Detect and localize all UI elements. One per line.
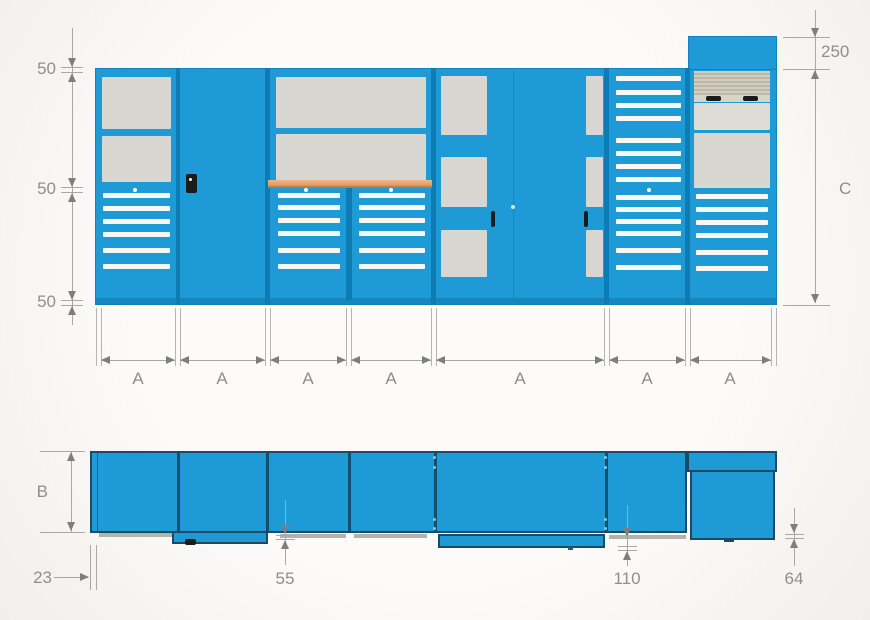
drawer-slit xyxy=(616,195,681,200)
gray-front-panel xyxy=(694,103,770,130)
hinge-dot xyxy=(604,466,607,469)
dim-label-23: 23 xyxy=(22,569,52,587)
plan-module-divider xyxy=(177,452,180,532)
worktop xyxy=(268,180,432,188)
extension-line xyxy=(96,545,97,590)
drawer-slit xyxy=(696,250,768,255)
dimension-tick xyxy=(276,535,295,536)
hinge-dot xyxy=(433,527,436,530)
plan-left-side-panel-line xyxy=(97,451,98,533)
module-divider xyxy=(685,68,690,305)
arrowhead-down xyxy=(67,522,75,531)
extension-line xyxy=(771,308,772,366)
arrowhead-right xyxy=(595,356,604,364)
lock-cylinder xyxy=(511,205,515,209)
drawer-slit xyxy=(616,151,681,156)
extension-line xyxy=(783,37,830,38)
drawer-slit xyxy=(696,266,768,271)
gray-window-panel xyxy=(586,76,603,135)
dimension-line xyxy=(609,360,685,361)
dim-label-110: 110 xyxy=(608,570,646,588)
dim-label-height-50-middle: 50 xyxy=(24,180,56,198)
dimension-line xyxy=(101,360,175,361)
dim-label-64: 64 xyxy=(780,570,808,588)
dimension-line xyxy=(270,360,346,361)
dimension-line xyxy=(436,360,604,361)
dimension-tick xyxy=(618,546,637,547)
drawer-slit xyxy=(359,248,425,253)
arrowhead-up xyxy=(790,539,798,548)
drawer-slit xyxy=(103,232,170,237)
lock-cylinder xyxy=(133,188,137,192)
drawer-slit xyxy=(359,264,425,269)
extension-line xyxy=(96,308,97,366)
dim-label-A-7: A xyxy=(720,370,740,388)
arrowhead-up xyxy=(68,193,76,202)
plan-step-detail xyxy=(568,547,573,550)
module-divider xyxy=(176,68,180,305)
plan-door-handle xyxy=(185,539,196,545)
drawer-slit xyxy=(616,231,681,236)
arrowhead-left xyxy=(270,356,279,364)
gray-door-panel xyxy=(102,136,171,182)
arrowhead-right xyxy=(337,356,346,364)
plan-worktop-edge-strip xyxy=(354,534,427,538)
arrowhead-up xyxy=(67,452,75,461)
hinge-dot xyxy=(604,527,607,530)
gray-window-panel xyxy=(441,76,487,135)
drawer-slit xyxy=(616,207,681,212)
drawer-slit xyxy=(616,177,681,182)
arrowhead-right xyxy=(80,573,89,581)
plan-door-module-step xyxy=(438,534,605,548)
drawer-slit xyxy=(103,206,170,211)
drawer-slit xyxy=(616,116,681,121)
drawer-slit xyxy=(359,193,425,198)
drawer-slit xyxy=(696,207,768,212)
drawer-slit xyxy=(103,193,170,198)
plan-right-cabinet-foot xyxy=(724,538,734,542)
arrowhead-up xyxy=(68,73,76,82)
plan-right-cabinet-body xyxy=(690,470,775,540)
module-divider xyxy=(604,68,609,305)
arrowhead-right xyxy=(762,356,771,364)
lock-cylinder xyxy=(389,188,393,192)
extension-line xyxy=(783,305,830,306)
drawer-slit xyxy=(616,164,681,169)
arrowhead-left xyxy=(609,356,618,364)
drawer-slit xyxy=(616,219,681,224)
dim-label-C: C xyxy=(839,180,851,198)
dimension-line xyxy=(180,360,265,361)
plan-front-edge-strip xyxy=(99,533,172,537)
module-divider xyxy=(346,188,352,300)
arrowhead-down xyxy=(68,178,76,187)
arrowhead-up xyxy=(623,551,631,560)
extension-line xyxy=(604,308,605,366)
gray-front-panel xyxy=(694,133,770,188)
extension-line xyxy=(783,69,830,70)
drawer-slit xyxy=(616,138,681,143)
dim-label-A-1: A xyxy=(128,370,148,388)
dim-label-B: B xyxy=(26,483,48,501)
dimension-tick xyxy=(61,300,83,301)
arrowhead-up xyxy=(811,70,819,79)
drawer-slit xyxy=(359,205,425,210)
drawer-slit xyxy=(616,90,681,95)
arrowhead-left xyxy=(351,356,360,364)
arrowhead-right xyxy=(166,356,175,364)
extension-line xyxy=(175,308,176,366)
drawer-slit xyxy=(103,219,170,224)
drawer-slit xyxy=(616,248,681,253)
arrowhead-down xyxy=(68,291,76,300)
drawer-slit xyxy=(696,233,768,238)
arrowhead-down xyxy=(811,294,819,303)
arrowhead-left xyxy=(690,356,699,364)
hinge-dot xyxy=(433,466,436,469)
arrowhead-down xyxy=(790,524,798,533)
roller-shutter xyxy=(694,71,770,95)
hinge-dot xyxy=(604,456,607,459)
dim-label-height-50-top: 50 xyxy=(24,60,56,78)
drawer-slit xyxy=(103,264,170,269)
arrowhead-up xyxy=(68,306,76,315)
shutter-handle xyxy=(743,96,758,101)
dim-label-A-3: A xyxy=(298,370,318,388)
arrowhead-down xyxy=(281,525,289,534)
hinge-dot xyxy=(433,518,436,521)
drawer-slit xyxy=(278,218,340,223)
dim-label-55: 55 xyxy=(271,570,299,588)
dim-label-250: 250 xyxy=(821,43,849,61)
gray-door-panel xyxy=(276,77,426,128)
door-handle xyxy=(491,211,495,227)
extension-line xyxy=(265,308,266,366)
arrowhead-right xyxy=(422,356,431,364)
arrowhead-down xyxy=(623,528,631,537)
drawer-slit xyxy=(696,194,768,199)
gray-window-panel xyxy=(441,230,487,277)
arrowhead-down xyxy=(811,28,819,37)
dimension-tick xyxy=(61,67,83,68)
lock-cylinder xyxy=(647,188,651,192)
lock-cylinder xyxy=(304,188,308,192)
drawer-slit xyxy=(616,103,681,108)
door-gap-line xyxy=(513,71,514,302)
dimension-line xyxy=(351,360,431,361)
dimension-line xyxy=(71,452,72,532)
hinge-dot xyxy=(604,518,607,521)
gray-door-panel xyxy=(276,134,426,180)
arrowhead-right xyxy=(676,356,685,364)
dimension-tick xyxy=(785,534,804,535)
extension-line xyxy=(776,308,777,366)
drawer-slit xyxy=(278,205,340,210)
extension-line xyxy=(40,532,85,533)
drawer-slit xyxy=(696,220,768,225)
drawer-slit xyxy=(278,193,340,198)
arrowhead-left xyxy=(436,356,445,364)
plan-module-divider xyxy=(266,452,269,532)
dimension-line xyxy=(690,360,771,361)
drawer-slit xyxy=(103,248,170,253)
door-handle xyxy=(584,211,588,227)
arrowhead-left xyxy=(180,356,189,364)
arrowhead-down xyxy=(68,58,76,67)
drawer-slit xyxy=(359,218,425,223)
dim-label-A-6: A xyxy=(637,370,657,388)
extension-line xyxy=(685,308,686,366)
extension-line xyxy=(346,308,347,366)
door-handle-detail xyxy=(189,178,192,181)
gray-door-panel xyxy=(102,77,171,129)
plan-right-cabinet-back-band xyxy=(687,451,777,472)
dimension-line xyxy=(794,508,795,566)
dim-label-A-5: A xyxy=(510,370,530,388)
dim-label-A-4: A xyxy=(381,370,401,388)
drawer-slit xyxy=(278,231,340,236)
top-unit-box xyxy=(688,36,777,70)
door-handle xyxy=(186,174,197,193)
plan-module-divider xyxy=(348,452,351,532)
drawer-slit xyxy=(616,265,681,270)
extension-line xyxy=(90,545,91,590)
gray-window-panel xyxy=(441,157,487,207)
hinge-dot xyxy=(433,456,436,459)
arrowhead-right xyxy=(256,356,265,364)
drawer-slit xyxy=(359,231,425,236)
drawer-slit xyxy=(278,248,340,253)
dimension-line xyxy=(815,10,816,303)
dim-label-height-50-bottom: 50 xyxy=(24,293,56,311)
extension-line xyxy=(431,308,432,366)
gray-window-panel xyxy=(586,230,603,277)
elevation-base-shade xyxy=(96,298,776,304)
arrowhead-left xyxy=(101,356,110,364)
technical-drawing-canvas: 50 50 50 250 C A A A A A A A xyxy=(0,0,870,620)
shutter-handle xyxy=(706,96,721,101)
arrowhead-up xyxy=(281,540,289,549)
drawer-slit xyxy=(278,264,340,269)
plan-front-edge-strip xyxy=(609,535,686,539)
gray-window-panel xyxy=(586,157,603,207)
extension-line xyxy=(40,451,85,452)
drawer-slit xyxy=(616,76,681,81)
dimension-tick xyxy=(61,187,83,188)
dim-label-A-2: A xyxy=(212,370,232,388)
